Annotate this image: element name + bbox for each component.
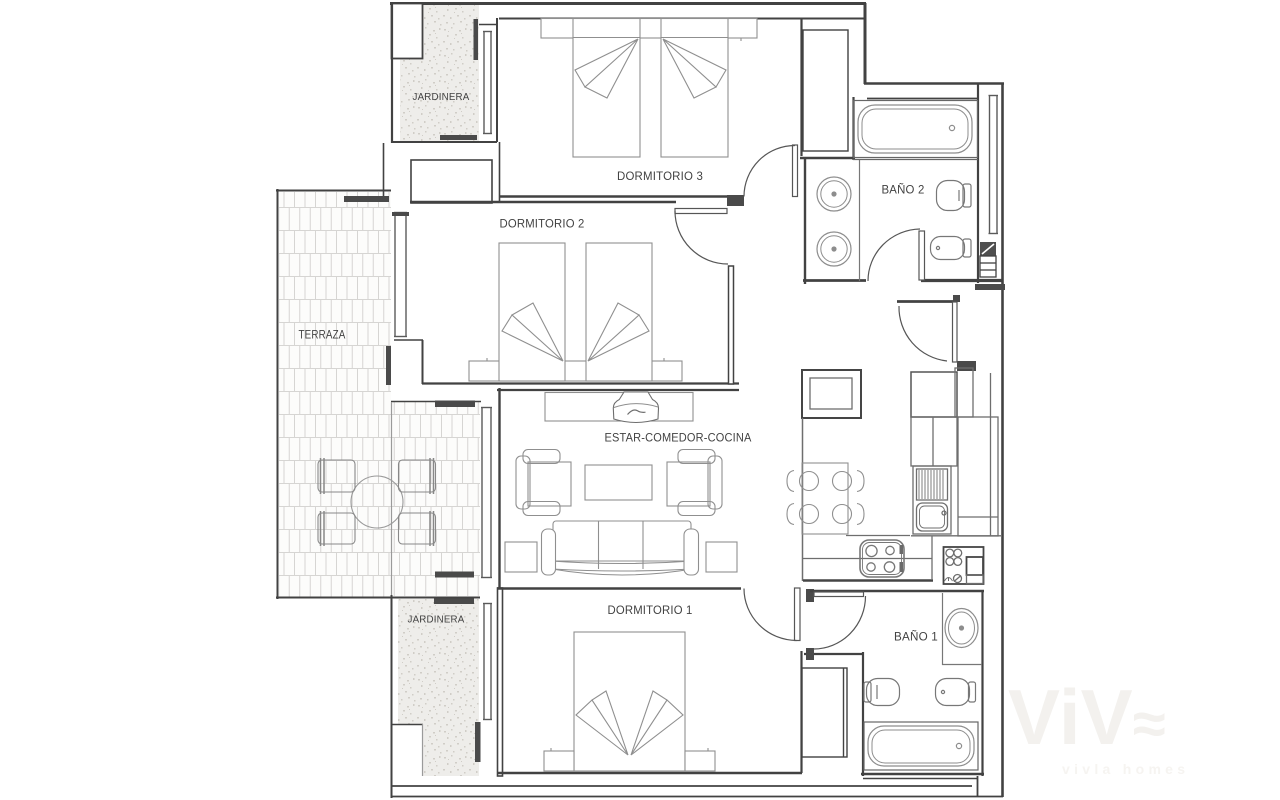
svg-text:ESTAR-COMEDOR-COCINA: ESTAR-COMEDOR-COCINA (605, 431, 753, 445)
svg-text:DORMITORIO 1: DORMITORIO 1 (608, 603, 693, 617)
svg-text:TERRAZA: TERRAZA (299, 330, 346, 342)
svg-text:BAÑO 2: BAÑO 2 (882, 184, 925, 197)
svg-text:JARDINERA: JARDINERA (408, 615, 465, 626)
svg-text:JARDINERA: JARDINERA (413, 92, 470, 103)
svg-text:v i v l a h o m e s: v i v l a h o m e s (1062, 761, 1185, 777)
svg-text:DORMITORIO 3: DORMITORIO 3 (617, 169, 703, 183)
svg-text:DORMITORIO 2: DORMITORIO 2 (500, 217, 585, 231)
svg-text:BAÑO 1: BAÑO 1 (894, 631, 938, 644)
